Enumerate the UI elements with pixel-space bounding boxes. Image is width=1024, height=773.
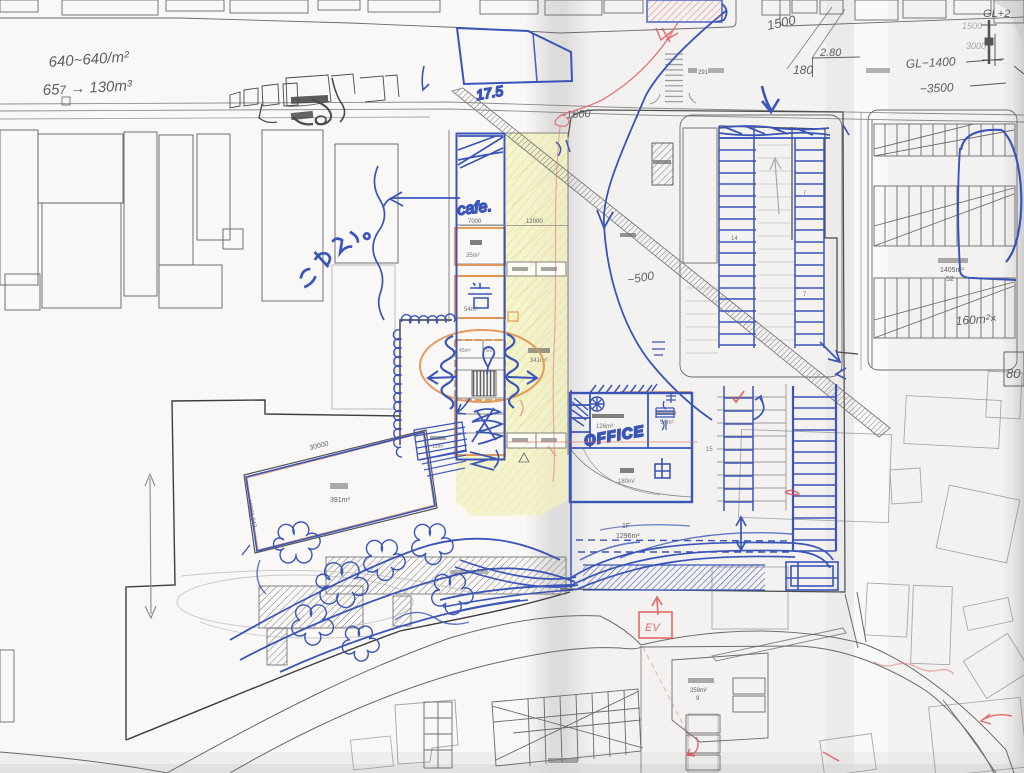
svg-text:180: 180	[793, 63, 813, 77]
svg-text:391m²: 391m²	[330, 497, 351, 504]
svg-text:14: 14	[731, 236, 738, 242]
svg-text:45m²: 45m²	[459, 348, 471, 354]
svg-text:80: 80	[1006, 366, 1021, 381]
svg-text:160m²×: 160m²×	[955, 311, 997, 328]
svg-text:EV: EV	[645, 622, 661, 634]
svg-text:291: 291	[698, 70, 709, 76]
svg-text:3000: 3000	[966, 41, 986, 51]
svg-text:7000: 7000	[468, 219, 482, 225]
svg-text:1296m²: 1296m²	[616, 533, 640, 540]
svg-text:259m²: 259m²	[690, 688, 707, 694]
svg-text:52: 52	[946, 276, 954, 283]
svg-text:15: 15	[706, 447, 713, 453]
svg-text:35m²: 35m²	[466, 253, 480, 259]
svg-text:−3500: −3500	[919, 80, 954, 96]
svg-text:GL+2: GL+2	[983, 8, 1010, 20]
svg-text:180m²: 180m²	[618, 479, 635, 485]
svg-text:GL−1400: GL−1400	[905, 54, 956, 71]
svg-text:1500: 1500	[962, 21, 982, 31]
